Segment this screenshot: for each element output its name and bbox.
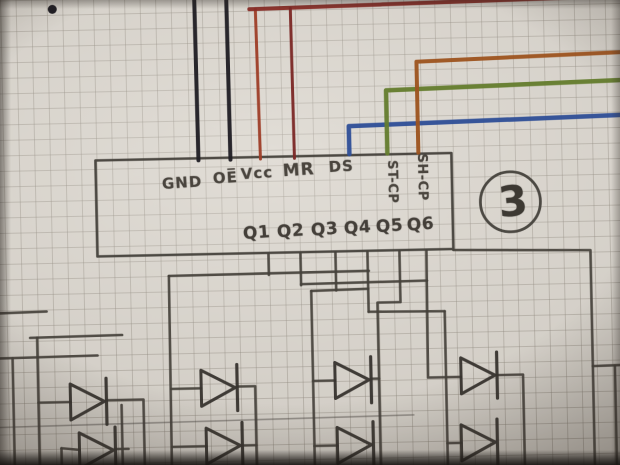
diode-r1c2-triangle (201, 370, 236, 407)
ink-dot (48, 5, 57, 14)
power-rail-top (249, 0, 620, 9)
photo-frame: GND OE̅ Vcc MR DS ST-CP SH-CP Q1 Q2 Q3 Q… (0, 0, 620, 465)
pin-label-sh-cp: SH-CP (414, 145, 430, 209)
d1-anode (39, 402, 71, 403)
faint-long-line (0, 415, 414, 428)
diode-r2c2-triangle (206, 428, 241, 465)
pin-label-q6: Q6 (406, 214, 435, 236)
bus-row4 (369, 310, 445, 313)
d5-anode (61, 448, 79, 450)
q6-drop (425, 250, 461, 378)
pin-label-q3: Q3 (310, 219, 339, 241)
left-branch-h1 (30, 335, 122, 338)
q4-drop (367, 252, 368, 312)
mr-wire (290, 8, 294, 158)
diode-r2c3-cathode-bar (373, 422, 374, 465)
vcc-wire (255, 9, 260, 159)
diode-r1c2-cathode-bar (237, 365, 238, 411)
mid-drop (311, 291, 315, 465)
pin-label-q5: Q5 (375, 215, 404, 237)
diode-r1c1-cathode-bar (106, 378, 107, 424)
diode-r2c1-triangle (79, 432, 114, 465)
pin-label-q1: Q1 (242, 222, 271, 244)
bus-row2 (301, 281, 427, 285)
pin-label-mr: MR (282, 159, 315, 181)
diode-r2c1-cathode-bar (115, 427, 116, 465)
oe-wire (226, 0, 231, 160)
d1-cathode-out (106, 400, 145, 465)
drawing-area: GND OE̅ Vcc MR DS ST-CP SH-CP Q1 Q2 Q3 Q… (0, 0, 620, 465)
d1-extra-drop (122, 405, 123, 465)
d6-anode (172, 446, 206, 447)
d2-cathode-out (237, 386, 257, 465)
q2-drop (300, 253, 301, 285)
graph-paper: GND OE̅ Vcc MR DS ST-CP SH-CP Q1 Q2 Q3 Q… (0, 0, 620, 465)
right-edge-drop (615, 366, 617, 464)
diode-r1c4-triangle (461, 357, 496, 394)
diode-r2c4-triangle (461, 424, 496, 461)
pin-label-st-cp: ST-CP (384, 150, 400, 214)
left-stub (0, 312, 47, 314)
q3-drop (335, 252, 336, 290)
schematic-svg (0, 0, 620, 465)
sheet-number: 3 (496, 176, 530, 227)
left-branch-h2 (0, 355, 98, 358)
left-main-drop (168, 276, 173, 465)
left-branch-v2 (13, 358, 15, 465)
d5-feed (61, 448, 62, 465)
d2-anode (171, 388, 201, 389)
diode-r1c3-triangle (335, 362, 370, 399)
gnd-wire (194, 0, 199, 160)
pin-label-q2: Q2 (276, 220, 305, 242)
pin-label-vcc: Vcc (240, 163, 274, 183)
diode-r1c1-triangle (70, 383, 105, 420)
diode-r2c2-cathode-bar (242, 422, 243, 465)
diode-r2c4-cathode-bar (497, 419, 498, 465)
d4-cathode-out (497, 375, 525, 465)
diode-r2c3-triangle (337, 427, 372, 464)
q5-drop (376, 251, 404, 465)
diode-r1c3-cathode-bar (371, 357, 372, 403)
diode-r1c4-cathode-bar (497, 352, 498, 398)
pin-label-oe: OE̅ (212, 168, 238, 188)
pin-label-gnd: GND (161, 172, 202, 193)
pin-label-q4: Q4 (343, 217, 372, 239)
pin-label-ds: DS (328, 157, 354, 177)
bus-row3 (311, 289, 368, 291)
sh-cp-wire (416, 51, 620, 153)
